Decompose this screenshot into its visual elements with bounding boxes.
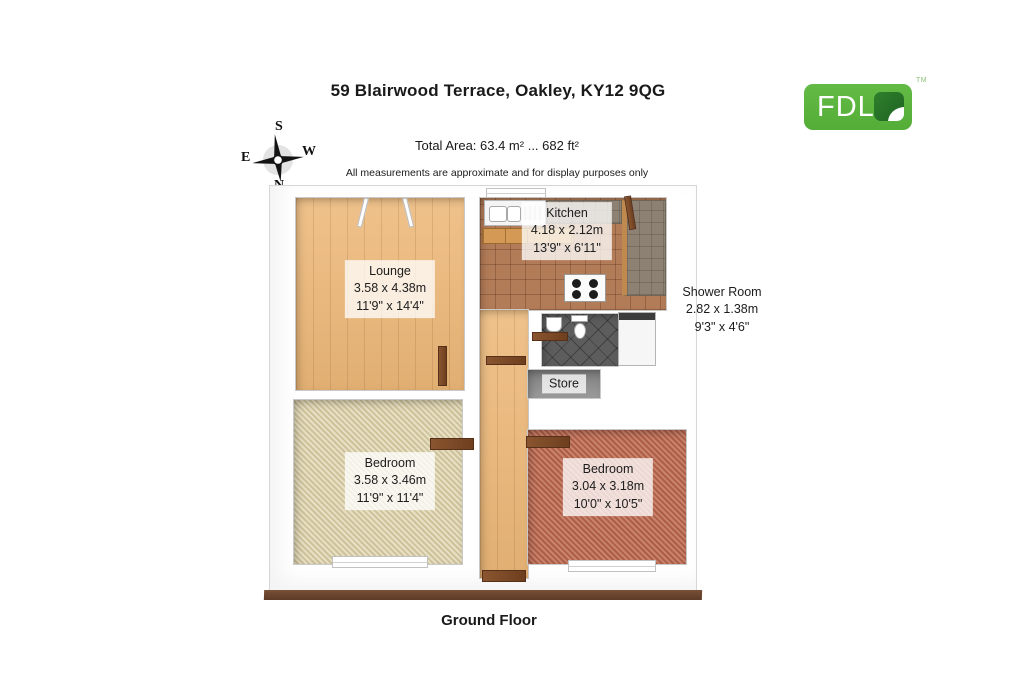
toilet-cistern (571, 315, 588, 322)
compass-east-label: E (241, 150, 250, 166)
shower-room-dims-imperial: 9'3" x 4'6" (682, 319, 761, 336)
bedroom-left-window (332, 556, 428, 568)
front-door (482, 570, 526, 582)
store-name: Store (549, 375, 579, 392)
total-area-text: Total Area: 63.4 m² ... 682 ft² (415, 138, 579, 153)
kitchen-label: Kitchen 4.18 x 2.12m 13'9" x 6'11" (522, 202, 612, 260)
disclaimer-text: All measurements are approximate and for… (346, 167, 648, 179)
kitchen-window (486, 188, 546, 198)
shower-enclosure (618, 312, 656, 366)
lounge-dims-imperial: 11'9" x 14'4" (354, 298, 426, 315)
shower-room-label: Shower Room 2.82 x 1.38m 9'3" x 4'6" (673, 281, 770, 339)
bedroom-left-door (430, 438, 474, 450)
lounge-name: Lounge (354, 263, 426, 280)
shower-room-dims-metric: 2.82 x 1.38m (682, 301, 761, 318)
hallway-floor (480, 310, 528, 578)
shower-wall-panel (619, 313, 655, 320)
leaf-icon (874, 92, 904, 121)
floor-name-label: Ground Floor (441, 612, 537, 629)
compass-west-label: W (302, 144, 316, 160)
bedroom-right-name: Bedroom (572, 461, 644, 478)
lounge-hall-door (438, 346, 447, 386)
compass-rose: S N E W (242, 122, 314, 194)
hallway-door (486, 356, 526, 365)
kitchen-dims-metric: 4.18 x 2.12m (531, 222, 603, 239)
bedroom-right-label: Bedroom 3.04 x 3.18m 10'0" x 10'5" (563, 458, 653, 516)
lounge-label: Lounge 3.58 x 4.38m 11'9" x 14'4" (345, 260, 435, 318)
fdl-logo-text: FDL (804, 93, 875, 122)
fdl-logo: FDL (804, 84, 912, 130)
bedroom-left-label: Bedroom 3.58 x 3.46m 11'9" x 11'4" (345, 452, 435, 510)
shower-room-door (532, 332, 568, 341)
shower-room-name: Shower Room (682, 284, 761, 301)
bathroom-basin (546, 317, 562, 332)
store-label: Store (542, 374, 586, 393)
kitchen-name: Kitchen (531, 205, 603, 222)
floor-plan: Lounge 3.58 x 4.38m 11'9" x 14'4" Kitche… (270, 186, 696, 590)
bedroom-right-door (526, 436, 570, 448)
bedroom-left-name: Bedroom (354, 455, 426, 472)
plan-outer-wall-base (264, 590, 702, 600)
lounge-dims-metric: 3.58 x 4.38m (354, 280, 426, 297)
bedroom-right-dims-metric: 3.04 x 3.18m (572, 478, 644, 495)
page-title: 59 Blairwood Terrace, Oakley, KY12 9QG (331, 81, 666, 100)
kitchen-hob (564, 274, 606, 302)
kitchen-dims-imperial: 13'9" x 6'11" (531, 240, 603, 257)
trademark-label: TM (916, 77, 927, 84)
bedroom-left-dims-metric: 3.58 x 3.46m (354, 472, 426, 489)
bedroom-left-dims-imperial: 11'9" x 11'4" (354, 490, 426, 507)
bedroom-right-window (568, 560, 656, 572)
compass-south-label: S (275, 119, 283, 135)
bedroom-right-dims-imperial: 10'0" x 10'5" (572, 496, 644, 513)
